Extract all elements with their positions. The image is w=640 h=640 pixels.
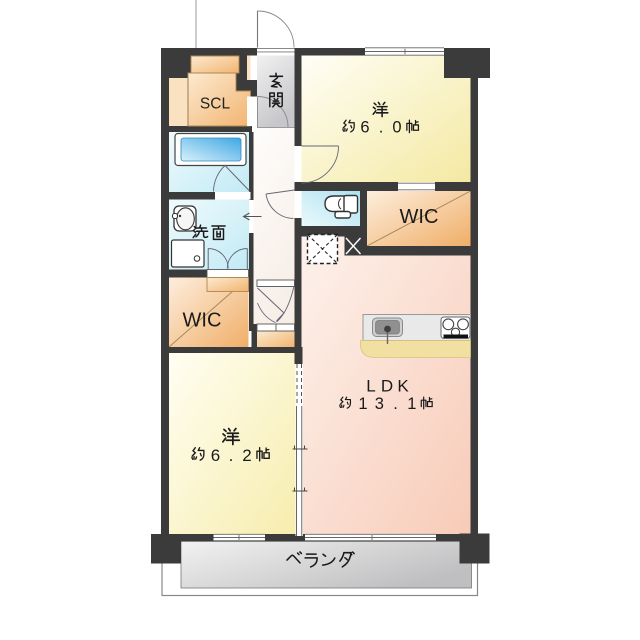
svg-text:3: 3 bbox=[375, 395, 384, 413]
svg-text:1: 1 bbox=[407, 395, 416, 413]
svg-text:WIC: WIC bbox=[400, 206, 439, 228]
svg-text:.: . bbox=[393, 395, 398, 413]
svg-text:6: 6 bbox=[360, 119, 369, 137]
svg-text:.: . bbox=[229, 446, 234, 465]
svg-text:WIC: WIC bbox=[183, 310, 222, 332]
svg-text:K: K bbox=[397, 377, 409, 396]
svg-text:D: D bbox=[381, 377, 393, 396]
svg-text:6: 6 bbox=[211, 446, 220, 465]
svg-text:0: 0 bbox=[392, 119, 401, 137]
svg-text:1: 1 bbox=[358, 395, 367, 413]
svg-text:L: L bbox=[366, 377, 375, 396]
svg-text:SCL: SCL bbox=[200, 96, 231, 113]
svg-text:.: . bbox=[379, 119, 384, 137]
svg-text:2: 2 bbox=[242, 446, 251, 465]
